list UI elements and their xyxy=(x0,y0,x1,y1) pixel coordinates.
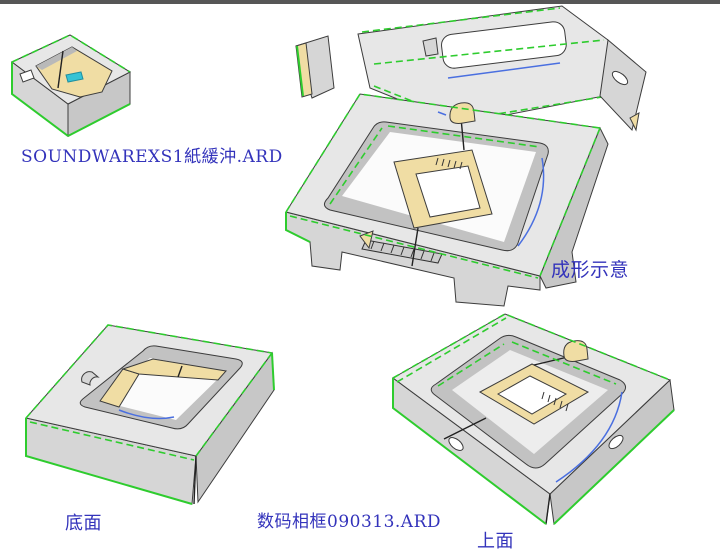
bottom-face-model xyxy=(22,314,277,514)
top-view-label: 上面 xyxy=(477,527,514,553)
locking-tab xyxy=(450,103,475,124)
drawing-canvas: SOUNDWAREXS1紙緩沖.ARD xyxy=(0,0,720,558)
model-view-top[interactable] xyxy=(386,296,686,535)
model-view-bottom[interactable] xyxy=(22,314,277,518)
right-wing xyxy=(600,40,646,130)
top-face-model xyxy=(386,296,686,531)
thumbnail-box-model xyxy=(6,28,146,142)
forming-view-label: 成形示意 xyxy=(551,255,629,282)
thumbnail-filename-label: SOUNDWAREXS1紙緩沖.ARD xyxy=(21,142,283,167)
locking-tab xyxy=(564,341,588,362)
handle-tab xyxy=(423,38,438,56)
model-view-thumbnail[interactable] xyxy=(6,28,146,146)
left-flap xyxy=(296,36,334,98)
bottom-view-label: 底面 xyxy=(65,509,102,535)
